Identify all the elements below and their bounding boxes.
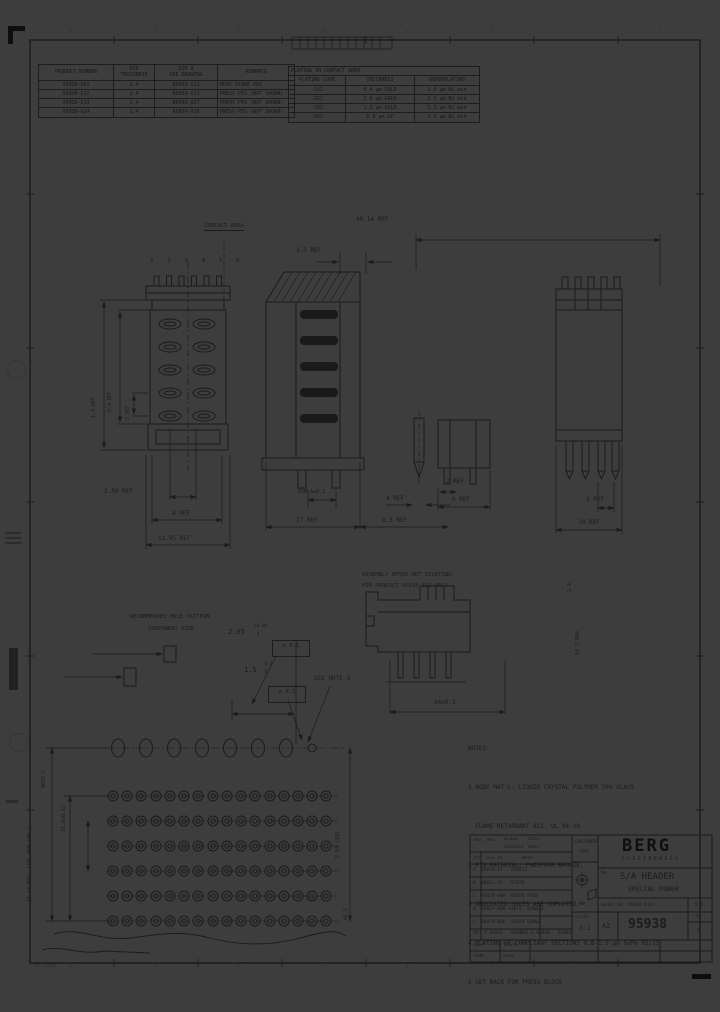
drawing-title-line2: SPECIAL POWER [628, 886, 679, 893]
col-dim-a: DIM A SEE DRAWING [155, 65, 218, 81]
corner-annotation: WV-7968 [34, 964, 55, 970]
dim-fv-94: 9.4 REF [108, 391, 114, 412]
hole-pattern-title-line2: COMPONENT SIDE. [148, 626, 198, 632]
dim-15-tol-lower: 0 [262, 670, 267, 675]
table-row: -3X2 1.3 µm GOLD 1.3 µm Ni min [289, 104, 480, 113]
punch-hole-artifact [7, 360, 26, 379]
col-remarks: REMARKS [218, 65, 295, 81]
revision-row: A 96019-97 920522 [473, 868, 527, 873]
zone-digit: 1 [658, 30, 661, 35]
col-pcb-line2: THICKNESS [116, 72, 152, 78]
berg-logo-subtitle: ELECTRONICS [622, 858, 680, 863]
cell-dim: 89039-X11 [155, 80, 218, 89]
position-tolerance-frame: ⌀ 0.1 [272, 640, 310, 657]
customer-copy-line2: COPY [579, 850, 590, 855]
dim-250: 2.50 REF [104, 489, 133, 496]
zone-digit: 5 [322, 30, 325, 35]
zone-digit: 4 [406, 30, 409, 35]
cell-under: 1.3 µm Ni min [415, 113, 480, 122]
zone-digit: 2 [574, 30, 577, 35]
dim-15-tol-upper: -0.1 [262, 662, 273, 667]
dim-4014: 40.14 REF [356, 217, 389, 224]
scan-smudge [5, 542, 21, 544]
dim-34: 34±0.2 [434, 700, 456, 707]
dim-6: 6 REF [452, 497, 470, 504]
table-row: 95938-X02 2.4 89039-X11 HEAT STAKE PEG [39, 80, 295, 89]
pin-numbers: 1 2 3 4 5 6 [150, 258, 245, 265]
rev-label: rev [693, 914, 701, 919]
cell-remarks: PRESS PEG (NOT SHOWN) [218, 99, 295, 108]
cell-remarks: PRESS PEG (NOT SHOWN) [218, 89, 295, 98]
assembly-note-line1: ASSEMBLY AFTER HOT RIVETING: [362, 572, 455, 578]
cell-thickness: 0.4 µm GOLD [346, 85, 415, 94]
assembly-view [366, 586, 470, 682]
plating-title: PLATING IN CONTACT AREA [289, 67, 480, 76]
cell-code: -2X2 [289, 94, 346, 103]
revision-row: ECO 2.95940 93003 [520, 931, 571, 936]
scan-smudge [9, 648, 18, 690]
see-note-3: SEE NOTE 3 [314, 676, 350, 683]
cell-thickness: 1.3 µm GOLD [346, 104, 415, 113]
cell-remarks: HEAT STAKE PEG [218, 80, 295, 89]
cell-thickness: 2.0 µm GOLD [346, 94, 415, 103]
note-item: FLAME RETARDANT ACC. UL 94-V0 [468, 820, 714, 833]
cell-pcb: 2.4 [114, 80, 155, 89]
dim-17: 17 REF [296, 518, 318, 525]
col-product-number: PRODUCT NUMBER [39, 65, 114, 81]
cell-pcb: 2.4 [114, 108, 155, 117]
table-row: -1X2 0.4 µm GOLD 1.3 µm Ni min [289, 85, 480, 94]
notes-block: NOTES: 1 BODY MAT'L: LIQUID CRYSTAL POLY… [468, 716, 714, 1012]
table-row: 95938-X12 2.4 89039-X11 PRESS PEG (NOT S… [39, 89, 295, 98]
cell-remarks: PRESS PEG (NOT SHOWN) [218, 108, 295, 117]
plating-header: PLATING CODE THICKNESS UNDERPLATING [289, 76, 480, 85]
dim-a: DIM A±0.1 [298, 490, 325, 496]
dim-4: 4 REF [386, 496, 404, 503]
strip-trace-label: trace [503, 943, 517, 948]
zone-digit: 3 [490, 30, 493, 35]
dim-1664: 16.64 REF. (TOL NON CUM.) [28, 827, 34, 902]
dim-310: 31.0±0.15 [62, 805, 68, 832]
punch-hole-artifact [9, 733, 28, 752]
revision-header-drawn: drawn date [504, 837, 539, 842]
col-thickness: THICKNESS [346, 76, 415, 85]
cell-pn: 95938-X14 [39, 108, 114, 117]
cell-code: -3X2 [289, 104, 346, 113]
table-row: 95938-X13 2.4 89039-X17 PRESS PEG (NOT S… [39, 99, 295, 108]
drawing-number: 95938 [628, 918, 667, 933]
revision-columns: ltr eco no. date [473, 856, 533, 861]
model-number-row: model No. 95938-X(X) [601, 903, 655, 908]
plating-table: PLATING IN CONTACT AREA PLATING CODE THI… [288, 66, 480, 123]
dim-dia15: ⌀1.5 [344, 908, 350, 920]
table-row: 95938-X14 2.4 89039-X10 PRESS PEG (NOT S… [39, 108, 295, 117]
position-tolerance-frame: ⌀ 0.1 [268, 686, 306, 703]
dim-85: 8.5 REF [382, 518, 407, 525]
strip-used2-label: used [503, 954, 514, 959]
revision-row: E 96074-006 93023 93902 [473, 920, 541, 925]
revision-header-left: rev. nos. [473, 838, 497, 843]
cell-thickness: 0.8 µm GF [346, 113, 415, 122]
drawing-title-line1: S/A HEADER [620, 872, 674, 882]
dim-fv-14: 1.4 REF [92, 397, 98, 418]
hole-pattern-title-line1: RECOMMENDED HOLE PATTERN, [130, 614, 213, 620]
dim-fv-2: 2 REF [126, 405, 132, 420]
col-plating-code: PLATING CODE [289, 76, 346, 85]
notes-title: NOTES: [468, 742, 714, 755]
berg-logo: BERG [622, 838, 671, 855]
plating-title-row: PLATING IN CONTACT AREA [289, 67, 480, 76]
table-row: -2X2 2.0 µm GOLD 1.3 µm Ni min [289, 94, 480, 103]
dim-205-tol-upper: +0.05 [254, 624, 268, 629]
col-underplating: UNDERPLATING [415, 76, 480, 85]
cell-under: 1.3 µm Ni min [415, 94, 480, 103]
revision-row: D 96037-008-93073 930823 [473, 907, 543, 912]
cell-dim: 89039-X11 [155, 89, 218, 98]
model-row-right: 3.0 [694, 903, 703, 909]
cell-pn: 95938-X02 [39, 80, 114, 89]
end-view [556, 277, 622, 479]
revision-row: 2M 2.95943 93902 [473, 931, 524, 936]
dim-145-max: 14.5 MAX [576, 631, 582, 655]
assembly-note-line2: FOR PRODUCT 95938-X02 ONLY [362, 583, 448, 589]
customer-copy-line1: CUSTOMER [575, 840, 597, 845]
dim-33: 3.3 REF [296, 248, 321, 255]
cell-code: -9X2 [289, 113, 346, 122]
zone-digit: 8 [70, 966, 73, 971]
front-view-dims [100, 300, 230, 549]
cell-under: 1.3 µm Ni min [415, 104, 480, 113]
scan-smudge [6, 800, 18, 803]
dim-rv-2: 2 REF [586, 497, 604, 504]
zone-digit: 6 [238, 966, 241, 971]
cell-pn: 95938-X13 [39, 99, 114, 108]
dim-rv-10: 10 REF [578, 520, 600, 527]
cell-under: 1.3 µm Ni min [415, 85, 480, 94]
scan-smudge [5, 532, 21, 534]
note-item: 1 BODY MAT'L: LIQUID CRYSTAL POLYMER 30%… [468, 781, 714, 794]
no-label: No. [601, 871, 609, 876]
rev-value: d [697, 926, 701, 934]
sheet-size: A2 [602, 922, 610, 930]
scan-smudge [5, 537, 21, 539]
revision-header-checked: checked date [504, 845, 539, 850]
cell-pcb: 2.4 [114, 89, 155, 98]
front-view [146, 262, 230, 470]
revision-row: B 96013-71 92078 [473, 881, 524, 886]
drawing-sheet: 8 7 6 5 4 3 2 1 8 7 6 5 4 3 2 1 PRODUCT … [0, 0, 720, 1012]
col-pcb-thickness: PCB THICKNESS [114, 65, 155, 81]
zone-digit: 6 [238, 30, 241, 35]
strip-used-label: used [473, 943, 484, 948]
cell-dim: 89039-X17 [155, 99, 218, 108]
units-label: mm [579, 902, 585, 908]
dim-254: 2.54 (5X) [336, 831, 342, 858]
dim-2: 2 REF [446, 479, 464, 486]
scale-value: 3:1 [579, 925, 591, 932]
cell-code: -1X2 [289, 85, 346, 94]
scale-label: scale [575, 915, 589, 920]
cell-pn: 95938-X12 [39, 89, 114, 98]
zone-digit: 5 [322, 966, 325, 971]
dim-205: 2.05 [228, 628, 245, 636]
contact-area-label: CONTACT AREA [204, 223, 244, 231]
side-view-dims [224, 234, 660, 530]
dim-24: 2.4 [568, 583, 574, 592]
zone-digit: 7 [154, 966, 157, 971]
cell-pcb: 2.4 [114, 99, 155, 108]
note-item: 5 SET BACK FOR PRESS BLOCK [468, 976, 714, 989]
top-strip [292, 37, 392, 49]
side-section-view [262, 272, 490, 488]
product-table-header: PRODUCT NUMBER PCB THICKNESS DIM A SEE D… [39, 65, 295, 81]
cell-dim: 89039-X10 [155, 108, 218, 117]
product-table: PRODUCT NUMBER PCB THICKNESS DIM A SEE D… [38, 64, 295, 118]
zone-digit: 8 [70, 30, 73, 35]
note-5-label: NOTE 5 [42, 770, 48, 788]
dim-1195: 11.95 REF [158, 536, 191, 543]
table-row: -9X2 0.8 µm GF 1.3 µm Ni min [289, 113, 480, 122]
revision-row: C 96029-008 93070 9708 [473, 894, 538, 899]
zone-digit: 7 [154, 30, 157, 35]
col-dima-line2: SEE DRAWING [157, 72, 215, 78]
strip-code-label: code [473, 954, 484, 959]
dim-8: 8 REF [172, 511, 190, 518]
dim-205-tol-lower: 0 [254, 632, 259, 637]
zone-digit: 4 [406, 966, 409, 971]
dim-15: 1.5 [244, 666, 257, 674]
